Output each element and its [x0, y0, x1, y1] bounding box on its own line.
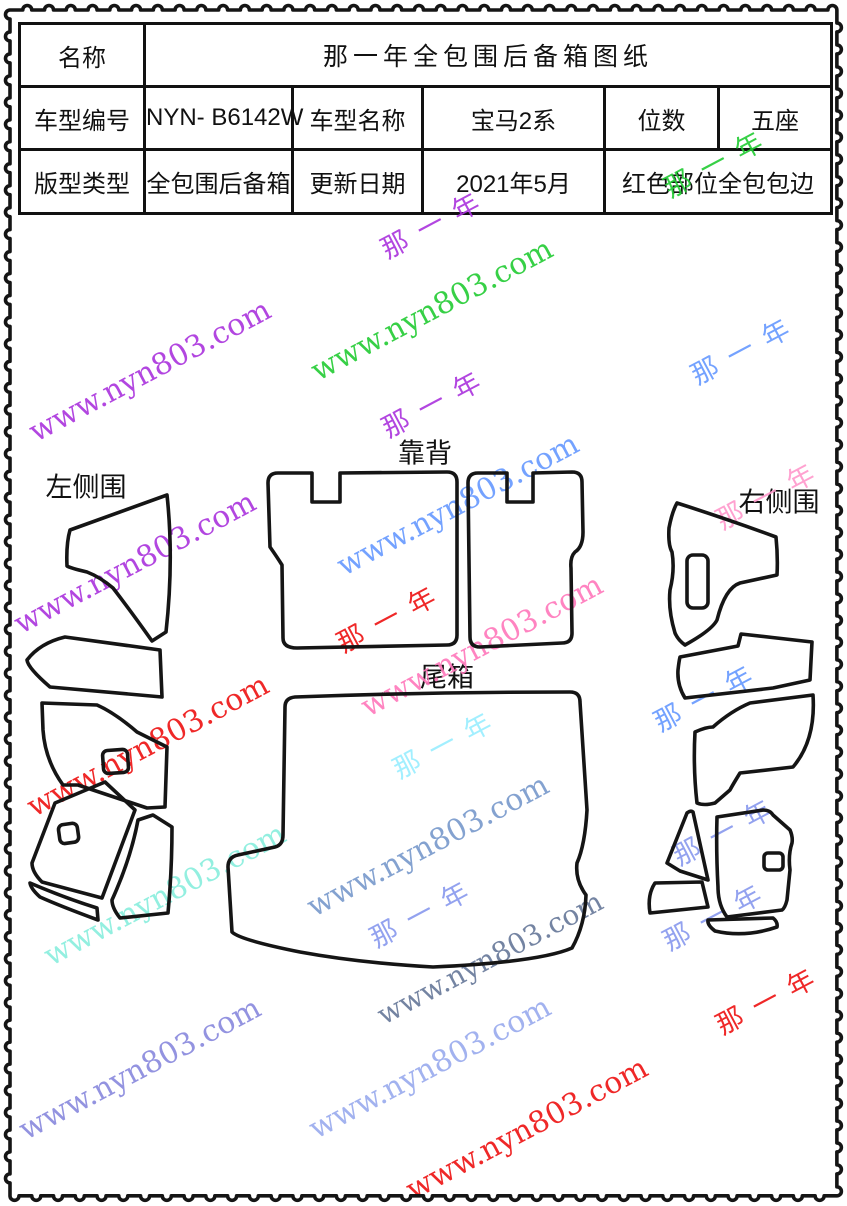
piece-left-side-4-cutout: [58, 823, 79, 844]
piece-right-side-2: [678, 634, 812, 698]
piece-left-side-3-cutout: [102, 749, 129, 774]
piece-left-side-1: [67, 495, 170, 641]
piece-right-side-1: [669, 503, 778, 645]
piece-trunk: [228, 692, 587, 967]
scalloped-page-border: [5, 6, 841, 1201]
piece-right-side-4: [667, 811, 708, 880]
piece-right-side-5-cutout: [764, 853, 783, 870]
piece-right-side-1-cutout: [687, 555, 708, 608]
piece-backrest-small: [468, 472, 583, 647]
piece-left-side-6: [112, 815, 172, 918]
piece-right-side-5: [717, 810, 793, 917]
piece-right-side-6: [649, 882, 708, 913]
piece-left-side-2: [27, 637, 162, 697]
piece-right-side-7: [708, 918, 777, 934]
drawing-sheet: 名称 那一年全包围后备箱图纸 车型编号 NYN- B6142W 车型名称 宝马2…: [0, 0, 847, 1206]
piece-left-side-3: [42, 703, 167, 808]
piece-right-side-3: [694, 695, 813, 805]
pattern-drawing-canvas: [0, 0, 847, 1206]
piece-backrest-large: [268, 472, 457, 648]
